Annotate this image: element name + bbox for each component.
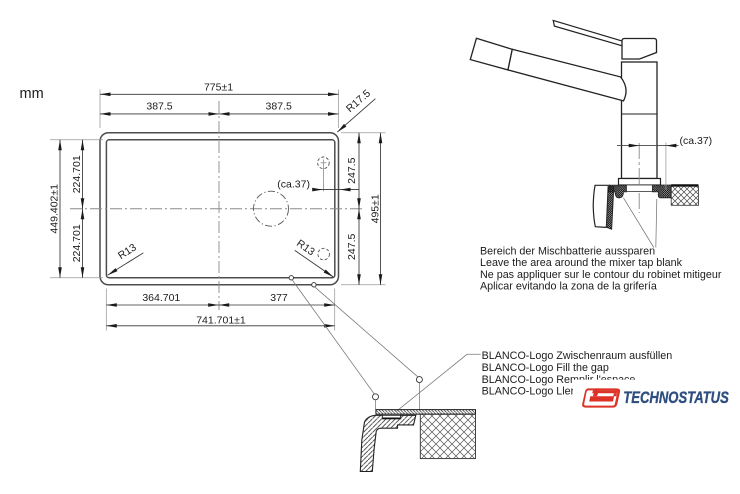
svg-text:364.701: 364.701 xyxy=(142,292,180,304)
svg-text:224.701: 224.701 xyxy=(71,155,83,193)
svg-text:mm: mm xyxy=(20,86,44,102)
svg-text:247.5: 247.5 xyxy=(346,234,358,260)
svg-text:Leave the area around the mixe: Leave the area around the mixer tap blan… xyxy=(480,257,683,269)
svg-text:449.402±1: 449.402±1 xyxy=(49,184,61,234)
svg-text:R17.5: R17.5 xyxy=(344,87,373,115)
svg-text:TECHNOSTATUS: TECHNOSTATUS xyxy=(623,388,729,407)
svg-text:495±1: 495±1 xyxy=(370,194,382,223)
svg-text:Ne pas appliquer sur le contou: Ne pas appliquer sur le contour du robin… xyxy=(480,269,722,281)
svg-text:387.5: 387.5 xyxy=(146,101,172,113)
svg-text:Bereich der Mischbatterie auss: Bereich der Mischbatterie aussparen xyxy=(480,246,655,258)
svg-text:741.701±1: 741.701±1 xyxy=(196,314,246,326)
svg-text:R13: R13 xyxy=(294,237,317,258)
svg-text:BLANCO-Logo Zwischenraum ausfü: BLANCO-Logo Zwischenraum ausfüllen xyxy=(482,350,673,362)
svg-text:Aplicar evitando la zona de la: Aplicar evitando la zona de la grifería xyxy=(480,280,657,292)
svg-text:(ca.37): (ca.37) xyxy=(680,135,713,147)
svg-text:(ca.37): (ca.37) xyxy=(277,179,310,191)
svg-text:224.701: 224.701 xyxy=(71,224,83,262)
svg-text:BLANCO-Logo Fill the gap: BLANCO-Logo Fill the gap xyxy=(482,362,609,374)
svg-text:775±1: 775±1 xyxy=(204,81,233,93)
svg-text:247.5: 247.5 xyxy=(346,157,358,183)
svg-text:387.5: 387.5 xyxy=(266,101,292,113)
svg-text:377: 377 xyxy=(270,292,288,304)
svg-text:R13: R13 xyxy=(116,241,139,262)
